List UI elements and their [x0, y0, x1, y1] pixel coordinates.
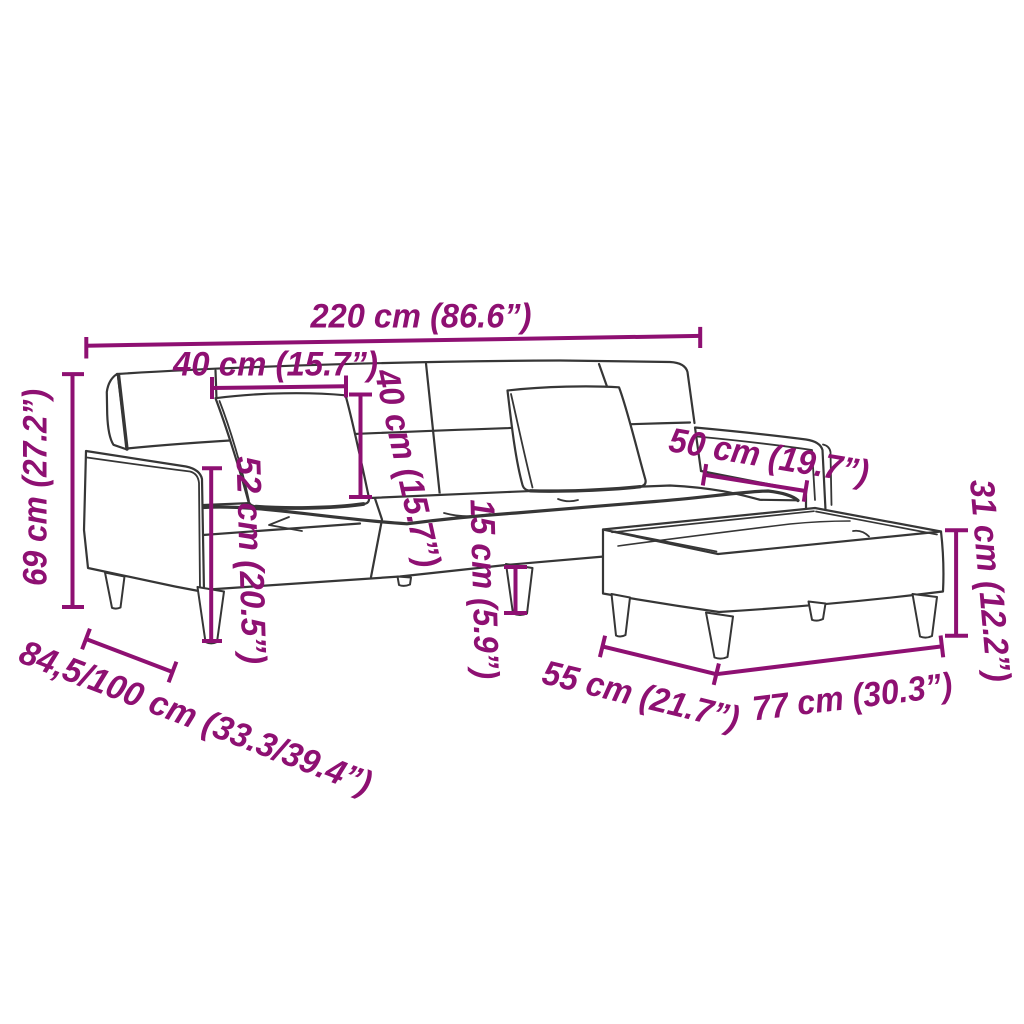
svg-text:40 cm (15.7”): 40 cm (15.7”) [172, 346, 378, 384]
svg-text:69 cm (27.2”): 69 cm (27.2”) [17, 389, 55, 586]
svg-text:52 cm (20.5”): 52 cm (20.5”) [229, 456, 273, 665]
svg-text:220 cm (86.6”): 220 cm (86.6”) [310, 298, 532, 336]
svg-text:15 cm (5.9”): 15 cm (5.9”) [463, 499, 506, 680]
